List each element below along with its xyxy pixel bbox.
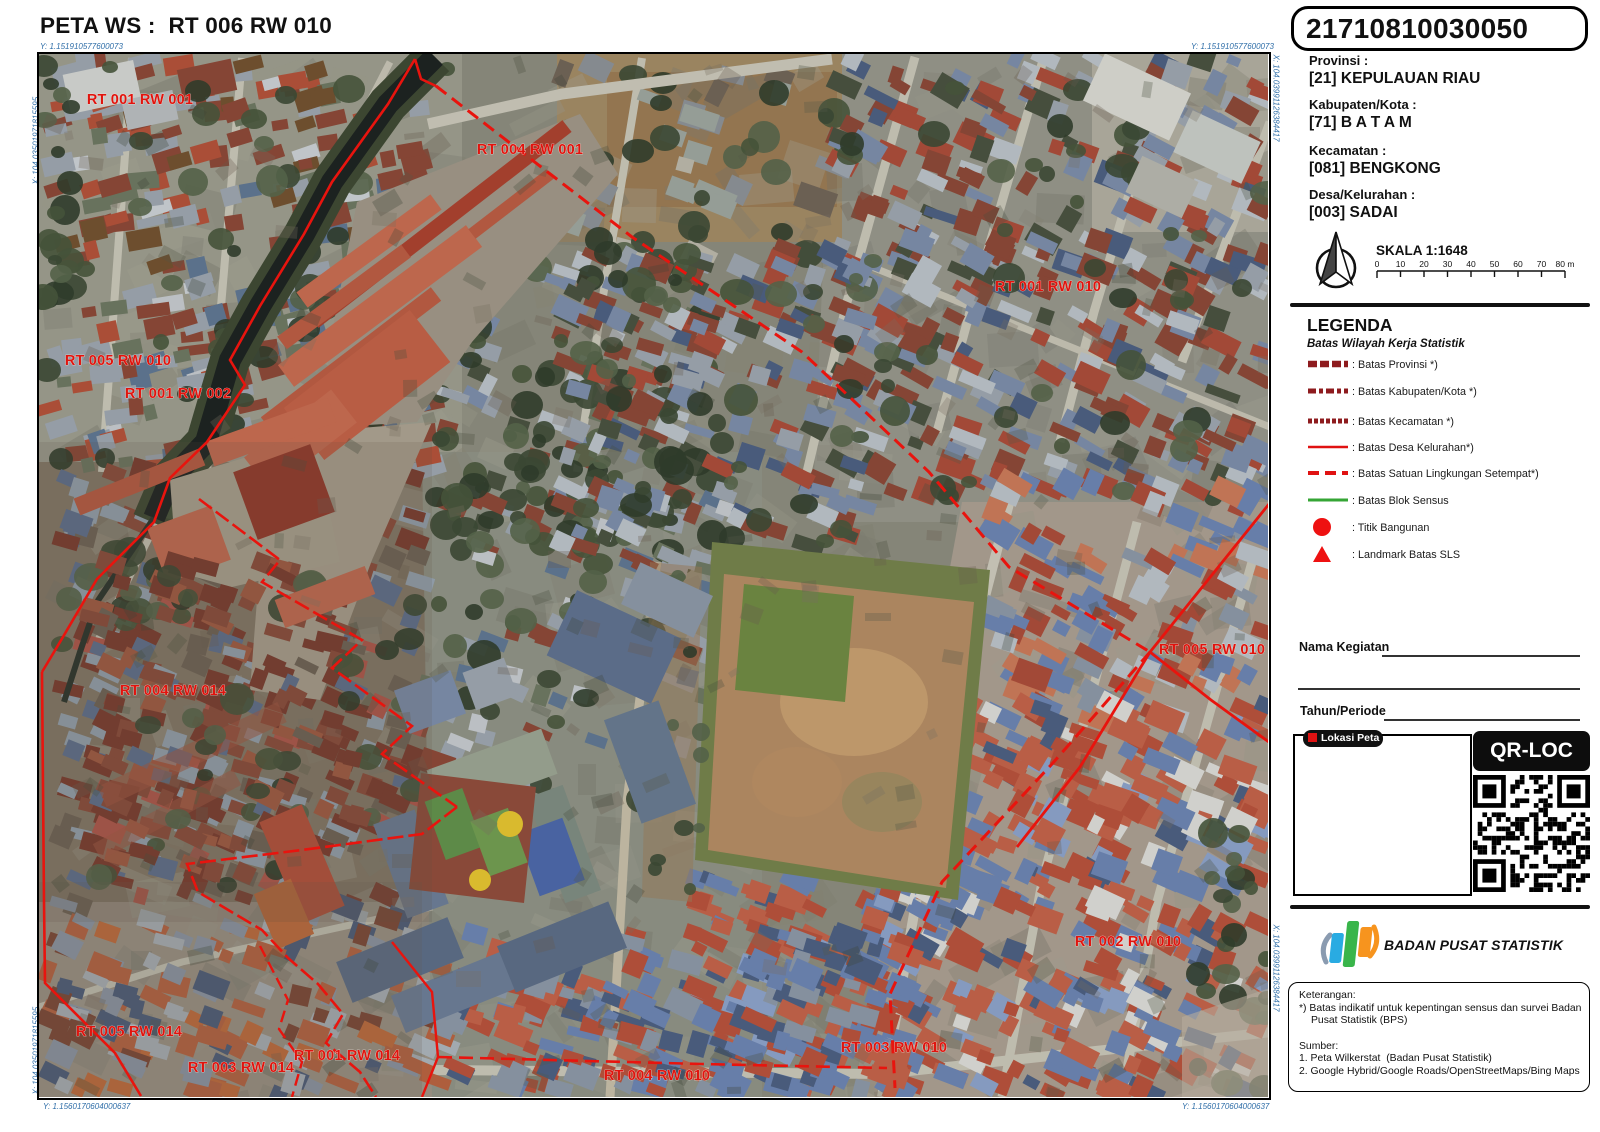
svg-text:RT 005 RW 010: RT 005 RW 010 xyxy=(65,353,171,369)
svg-text:RT 005 RW 010: RT 005 RW 010 xyxy=(1159,642,1265,658)
svg-text:20: 20 xyxy=(1419,260,1429,269)
svg-text:RT 002 RW 010: RT 002 RW 010 xyxy=(1075,934,1181,950)
svg-text:30: 30 xyxy=(1443,260,1453,269)
svg-text:RT 003 RW 010: RT 003 RW 010 xyxy=(841,1040,947,1056)
svg-text:60: 60 xyxy=(1513,260,1523,269)
svg-text:40: 40 xyxy=(1466,260,1476,269)
svg-text:RT 001 RW 001: RT 001 RW 001 xyxy=(87,92,193,108)
svg-text:RT 001 RW 002: RT 001 RW 002 xyxy=(125,386,231,402)
svg-text:70: 70 xyxy=(1537,260,1547,269)
svg-text:10: 10 xyxy=(1396,260,1406,269)
svg-text:80 m: 80 m xyxy=(1556,260,1575,269)
svg-text:0: 0 xyxy=(1375,260,1380,269)
svg-text:RT 003 RW 014: RT 003 RW 014 xyxy=(188,1060,294,1076)
svg-text:RT 005 RW 014: RT 005 RW 014 xyxy=(76,1024,182,1040)
svg-text:50: 50 xyxy=(1490,260,1500,269)
svg-text:RT 001 RW 010: RT 001 RW 010 xyxy=(995,279,1101,295)
svg-text:RT 004 RW 014: RT 004 RW 014 xyxy=(120,683,226,699)
svg-text:RT 004 RW 001: RT 004 RW 001 xyxy=(477,142,583,158)
svg-text:RT 001 RW 014: RT 001 RW 014 xyxy=(294,1048,400,1064)
svg-text:RT 004 RW 010: RT 004 RW 010 xyxy=(604,1068,710,1084)
